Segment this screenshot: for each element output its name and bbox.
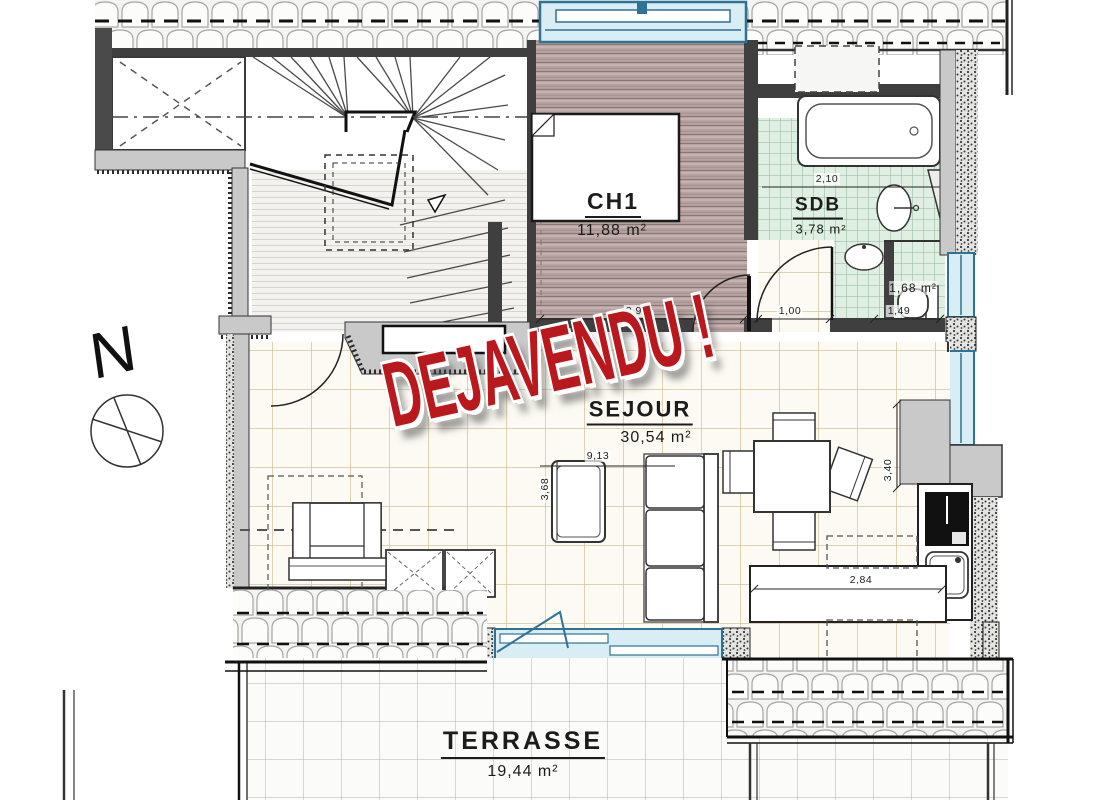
dim-wc-width: 1,49	[886, 305, 912, 317]
room-area-sejour: 30,54 m²	[620, 429, 691, 447]
coffee-table	[552, 461, 605, 542]
bathroom-sdb	[752, 46, 978, 332]
dim-sejour-length: 9,13	[585, 450, 611, 462]
room-label-terrasse: TERRASSE	[441, 727, 605, 759]
room-area-terrasse: 19,44 m²	[487, 763, 558, 781]
dim-sdb-width: 2,10	[814, 173, 840, 185]
bathtub	[798, 96, 940, 166]
floor-plan: N CH1 11,88 m² SDB 3,78 m² 1,68 m² SEJOU…	[0, 0, 1110, 800]
bedroom-ch1	[527, 2, 760, 332]
room-area-sdb: 3,78 m²	[795, 222, 846, 237]
roof-tiles-bottom-left	[233, 590, 487, 658]
ch1-window	[540, 2, 746, 42]
sofa	[644, 454, 718, 622]
room-label-ch1: CH1	[585, 188, 641, 218]
roof-window-dashed	[795, 46, 879, 92]
dim-kitchen-run: 2,84	[848, 574, 874, 586]
room-area-wc: 1,68 m²	[889, 281, 937, 295]
room-label-sdb: SDB	[793, 195, 843, 220]
sideboard	[289, 558, 386, 580]
dim-sejour-depth-left: 3,68	[539, 476, 551, 502]
dim-sejour-depth-right: 3,40	[882, 457, 894, 483]
room-area-ch1: 11,88 m²	[577, 222, 647, 240]
dim-hall-width: 1,00	[777, 305, 803, 317]
storage-cabinets	[386, 550, 495, 597]
